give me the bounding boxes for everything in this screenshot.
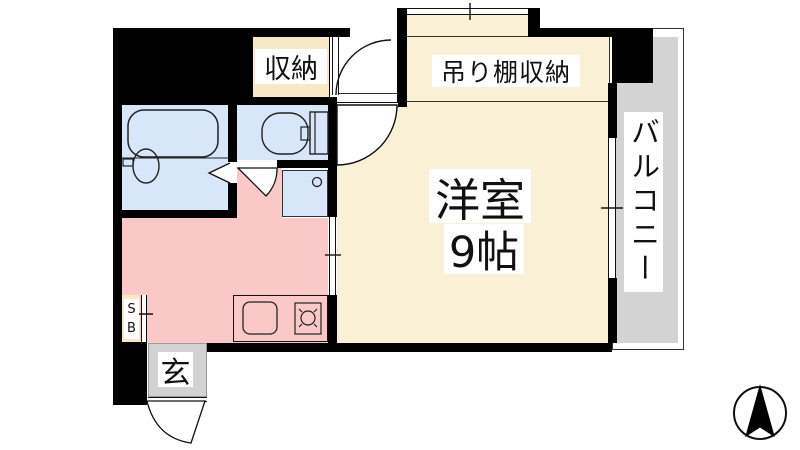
- burner-tick: [299, 324, 302, 327]
- hanging-shelf-label: 吊り棚収納: [432, 55, 580, 87]
- floor-plan: 収納 吊り棚収納 洋室 9帖 バルコニー 玄 SB: [0, 0, 800, 450]
- western-room-size: 9帖: [444, 224, 524, 274]
- entrance-door-swing: [147, 401, 205, 443]
- balcony-label: バルコニー: [624, 112, 663, 292]
- stove-burner-icon: [301, 311, 315, 325]
- closet-door-swing-arc: [336, 40, 391, 95]
- western-room-name: 洋室: [429, 169, 531, 223]
- basin-faucet-icon: [123, 159, 133, 166]
- toilet-door-swing: [238, 168, 277, 196]
- burner-tick: [314, 324, 317, 327]
- burner-tick: [314, 309, 317, 312]
- wash-basin-icon: [133, 149, 159, 183]
- plan-linework: [0, 0, 800, 450]
- burner-tick: [299, 309, 302, 312]
- toilet-tank-icon: [310, 112, 328, 154]
- room-door-swing: [337, 105, 397, 165]
- closet-label: 収納: [255, 49, 327, 84]
- washer-faucet-icon: [313, 178, 322, 187]
- bathroom-door-icon: [209, 163, 230, 183]
- entrance-label: 玄: [158, 352, 193, 387]
- shoe-box-label: SB: [124, 299, 139, 339]
- kitchen-sink-icon: [243, 302, 277, 334]
- stove-icon: [295, 303, 321, 334]
- compass-north-icon: [746, 386, 774, 436]
